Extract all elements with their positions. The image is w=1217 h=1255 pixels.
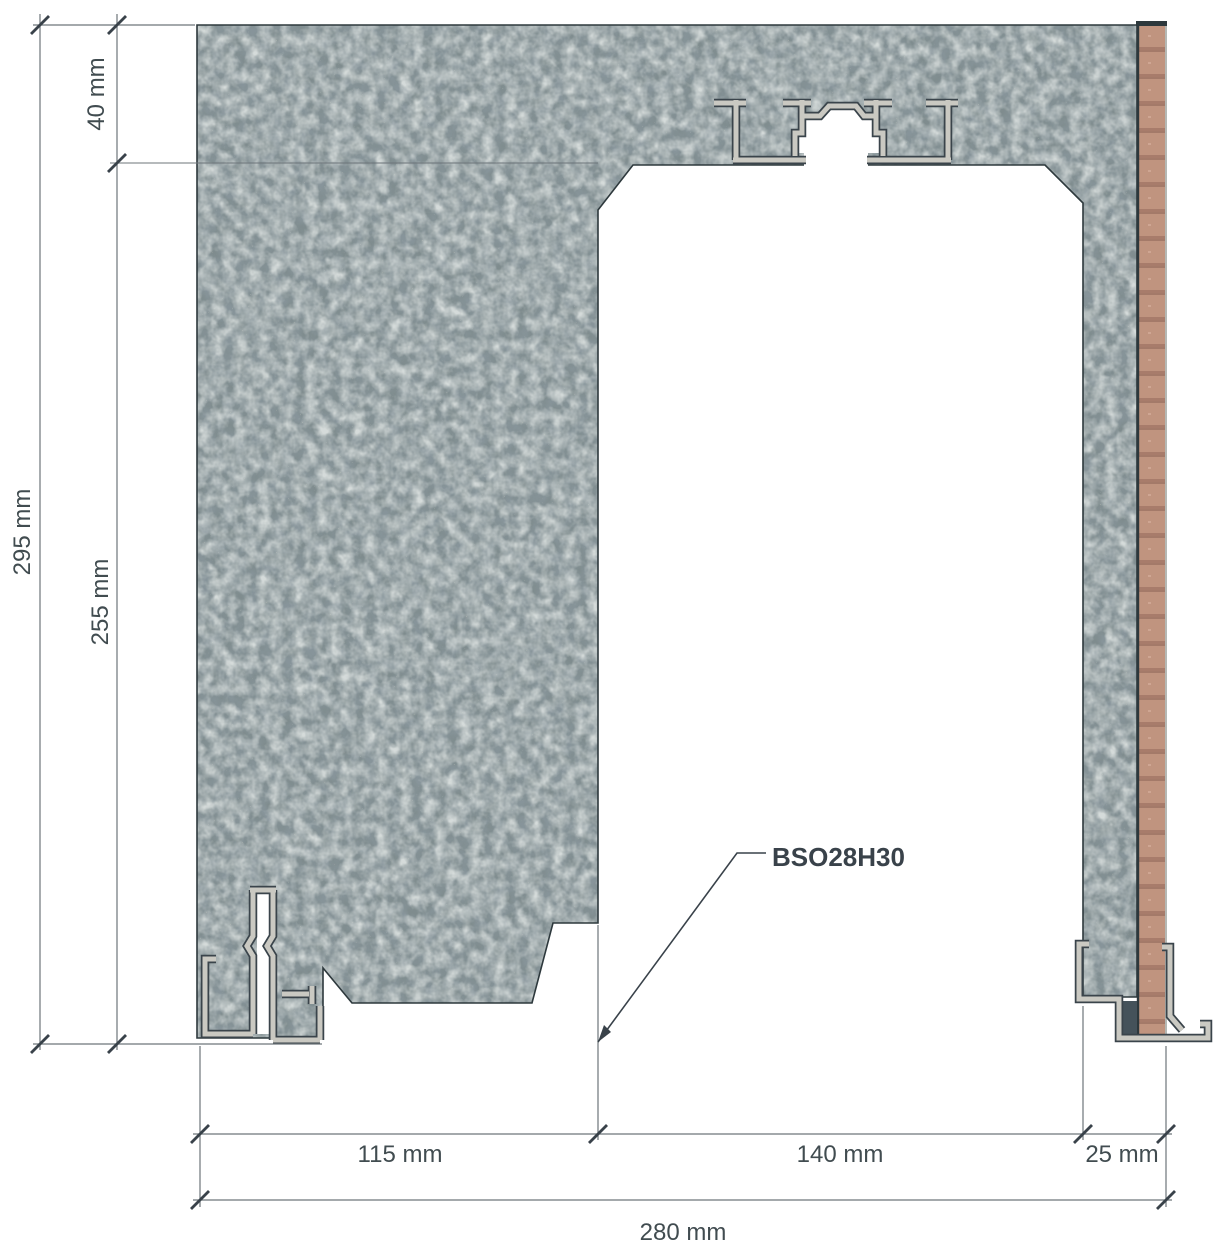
cross-section-drawing: BSO28H30 40 mm 295 mm 255 mm 115 mm 140 … xyxy=(0,0,1217,1255)
dimension-label-top-offset: 40 mm xyxy=(83,57,110,130)
dimension-label-opening-width: 140 mm xyxy=(797,1141,884,1168)
seal-block xyxy=(1122,1001,1137,1037)
wood-panel xyxy=(1136,21,1167,1036)
wood-panel-body xyxy=(1138,24,1166,1036)
floor-guide-slot xyxy=(257,894,269,1034)
dimension-label-overall-width: 280 mm xyxy=(640,1219,727,1246)
technical-drawing-page: BSO28H30 40 mm 295 mm 255 mm 115 mm 140 … xyxy=(0,0,1217,1255)
dimension-label-left-wall-width: 115 mm xyxy=(358,1141,443,1168)
wood-top-cap xyxy=(1136,21,1167,26)
dimension-label-panel-width: 25 mm xyxy=(1085,1141,1158,1168)
profile-label: BSO28H30 xyxy=(772,842,905,872)
dimension-label-inner-height: 255 mm xyxy=(87,559,114,646)
dimension-label-overall-height: 295 mm xyxy=(9,489,36,576)
